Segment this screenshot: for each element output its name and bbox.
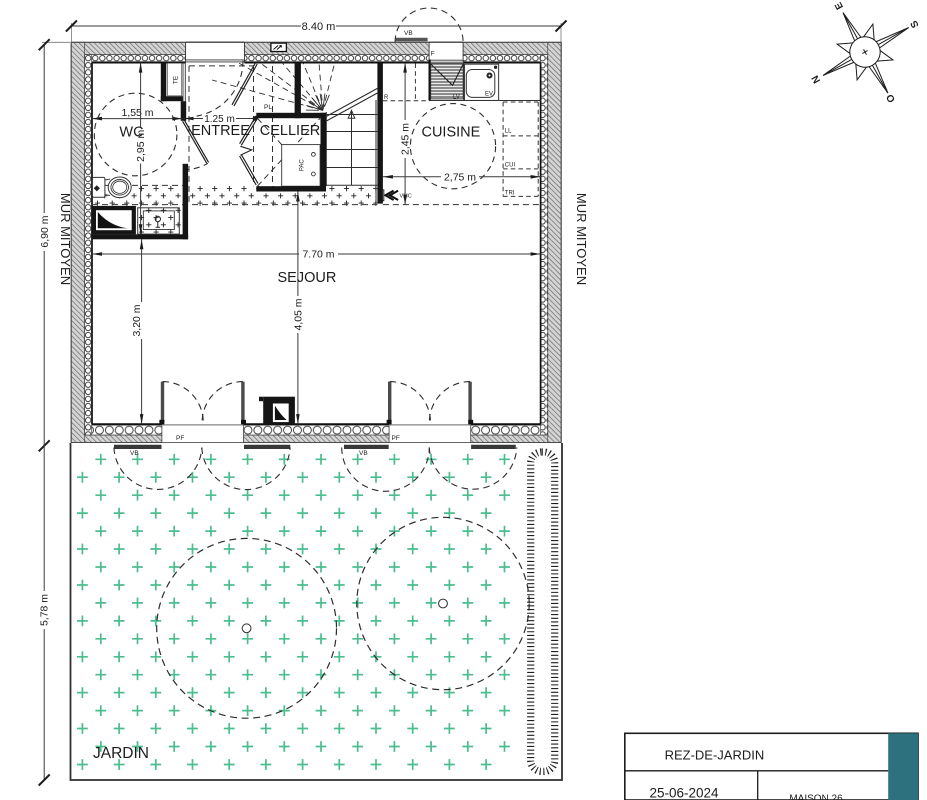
svg-text:2,75 m: 2,75 m (444, 171, 476, 183)
svg-text:TRI: TRI (505, 190, 515, 196)
svg-text:MUR MITOYEN: MUR MITOYEN (574, 193, 589, 285)
svg-text:R: R (384, 95, 389, 101)
svg-text:MUR MITOYEN: MUR MITOYEN (58, 193, 73, 285)
svg-text:WC: WC (119, 125, 143, 141)
svg-text:F: F (431, 51, 435, 58)
svg-text:REZ-DE-JARDIN: REZ-DE-JARDIN (665, 747, 765, 762)
svg-text:2,45 m: 2,45 m (400, 123, 412, 155)
svg-text:LL: LL (505, 129, 512, 135)
svg-text:LV: LV (453, 95, 460, 101)
svg-text:CELLIER: CELLIER (260, 123, 320, 139)
svg-text:TE: TE (173, 75, 180, 84)
svg-text:ENTREE: ENTREE (191, 123, 250, 139)
svg-text:PAC: PAC (300, 159, 306, 172)
svg-text:6,90 m: 6,90 m (39, 215, 51, 247)
svg-text:MAISON 26: MAISON 26 (789, 794, 843, 800)
svg-text:VB: VB (404, 30, 413, 37)
svg-text:CUISINE: CUISINE (421, 124, 480, 140)
svg-text:VB: VB (359, 450, 368, 457)
svg-text:1,55 m: 1,55 m (121, 107, 153, 119)
svg-text:PF: PF (176, 435, 184, 442)
svg-text:PL: PL (264, 104, 272, 111)
svg-text:8.40 m: 8.40 m (302, 21, 336, 33)
svg-text:7.70 m: 7.70 m (302, 249, 334, 261)
svg-text:3,20 m: 3,20 m (131, 304, 143, 336)
svg-text:25-06-2024: 25-06-2024 (649, 785, 719, 800)
svg-text:PF: PF (392, 435, 400, 442)
svg-text:4,05 m: 4,05 m (292, 298, 304, 330)
svg-text:5,78 m: 5,78 m (39, 594, 51, 626)
svg-text:VB: VB (130, 450, 139, 457)
svg-text:JARDIN: JARDIN (93, 745, 149, 762)
svg-text:CUI: CUI (505, 162, 516, 168)
svg-text:SEJOUR: SEJOUR (277, 270, 336, 286)
svg-text:EV: EV (485, 92, 493, 98)
